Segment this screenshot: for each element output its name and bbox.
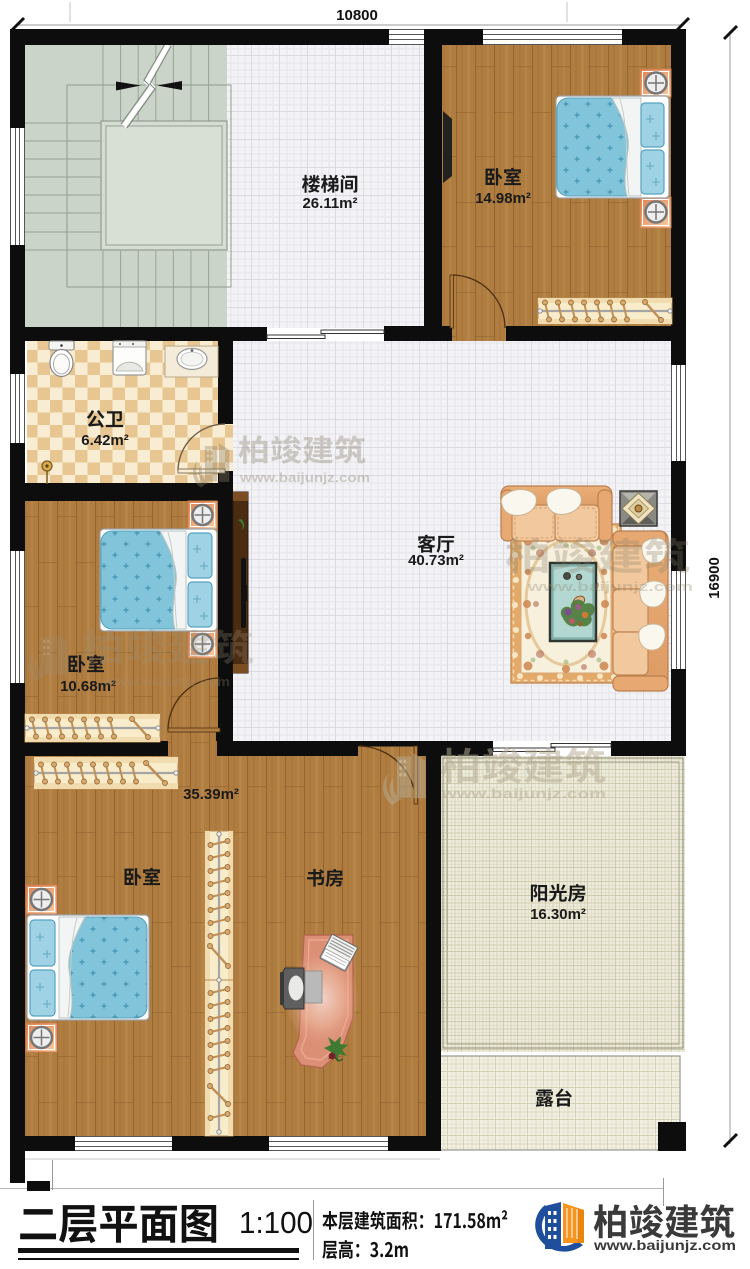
svg-text:www.baijunjz.com: www.baijunjz.com <box>527 579 693 594</box>
svg-text:10800: 10800 <box>336 7 378 24</box>
svg-text:www.baijunjz.com: www.baijunjz.com <box>441 786 606 801</box>
svg-text:6.42m²: 6.42m² <box>81 432 129 449</box>
svg-text:40.73m²: 40.73m² <box>408 552 464 569</box>
svg-text:www.baijunjz.com: www.baijunjz.com <box>593 1237 736 1253</box>
svg-text:www.baijunjz.com: www.baijunjz.com <box>103 674 230 689</box>
svg-text:1:100: 1:100 <box>239 1205 313 1240</box>
svg-text:16900: 16900 <box>706 557 723 599</box>
svg-text:35.39m²: 35.39m² <box>183 786 239 803</box>
svg-text:14.98m²: 14.98m² <box>475 190 531 207</box>
svg-text:16.30m²: 16.30m² <box>530 906 586 923</box>
svg-text:26.11m²: 26.11m² <box>302 195 357 212</box>
svg-text:www.baijunjz.com: www.baijunjz.com <box>239 470 370 485</box>
